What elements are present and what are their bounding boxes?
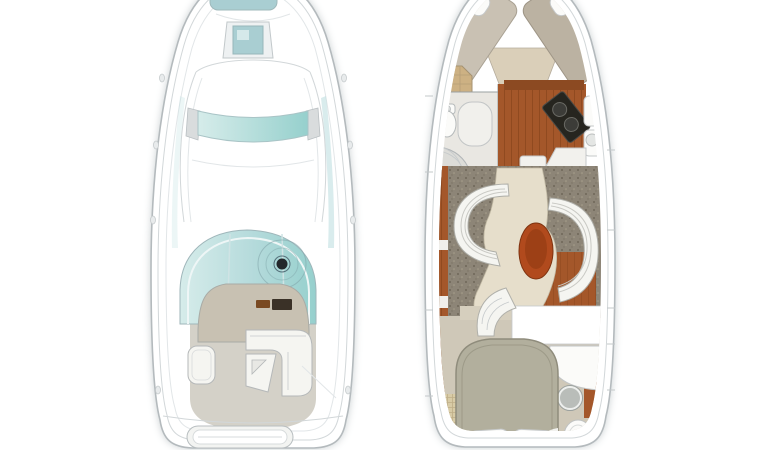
mid-bulkhead [512,306,608,344]
helm-wheel [277,259,288,270]
exterior-deck-plan [151,0,356,448]
galley-upper-band [504,80,584,90]
cleat [160,74,165,82]
cleat [151,216,156,224]
cleat [342,74,347,82]
cleat [348,141,353,149]
head-vanity [458,102,492,146]
instrument-panel [272,299,292,310]
dinette-table-center [525,229,547,269]
aft-sink [559,387,581,409]
floorplan-canvas [0,0,765,450]
cleat [346,386,351,394]
cleat [156,386,161,394]
interior-cabin-plan [419,0,620,450]
floorplan-drawing [0,0,765,450]
cleat [154,141,159,149]
anchor-hatch [210,0,277,10]
foredeck-hatch-glare [237,30,249,40]
throttle-control [256,300,270,308]
cleat [351,216,356,224]
